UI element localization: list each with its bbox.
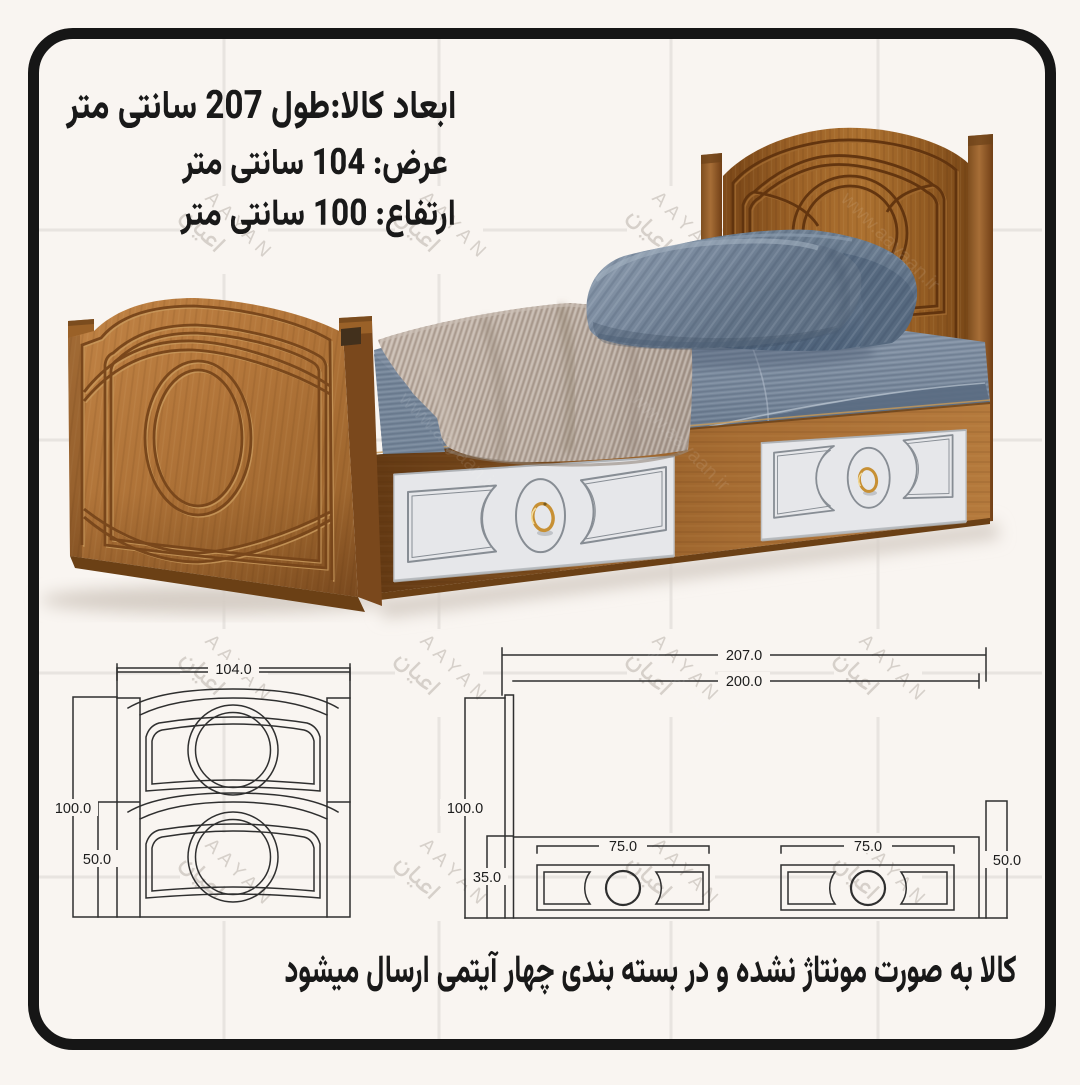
svg-text:50.0: 50.0 bbox=[993, 853, 1021, 869]
svg-text:35.0: 35.0 bbox=[473, 870, 501, 886]
svg-text:75.0: 75.0 bbox=[609, 839, 637, 855]
svg-text:100.0: 100.0 bbox=[447, 801, 483, 817]
svg-text:50.0: 50.0 bbox=[83, 852, 111, 868]
svg-text:200.0: 200.0 bbox=[726, 674, 762, 690]
svg-text:75.0: 75.0 bbox=[854, 839, 882, 855]
svg-text:104.0: 104.0 bbox=[215, 662, 251, 678]
svg-text:207.0: 207.0 bbox=[726, 648, 762, 664]
svg-text:100.0: 100.0 bbox=[55, 801, 91, 817]
